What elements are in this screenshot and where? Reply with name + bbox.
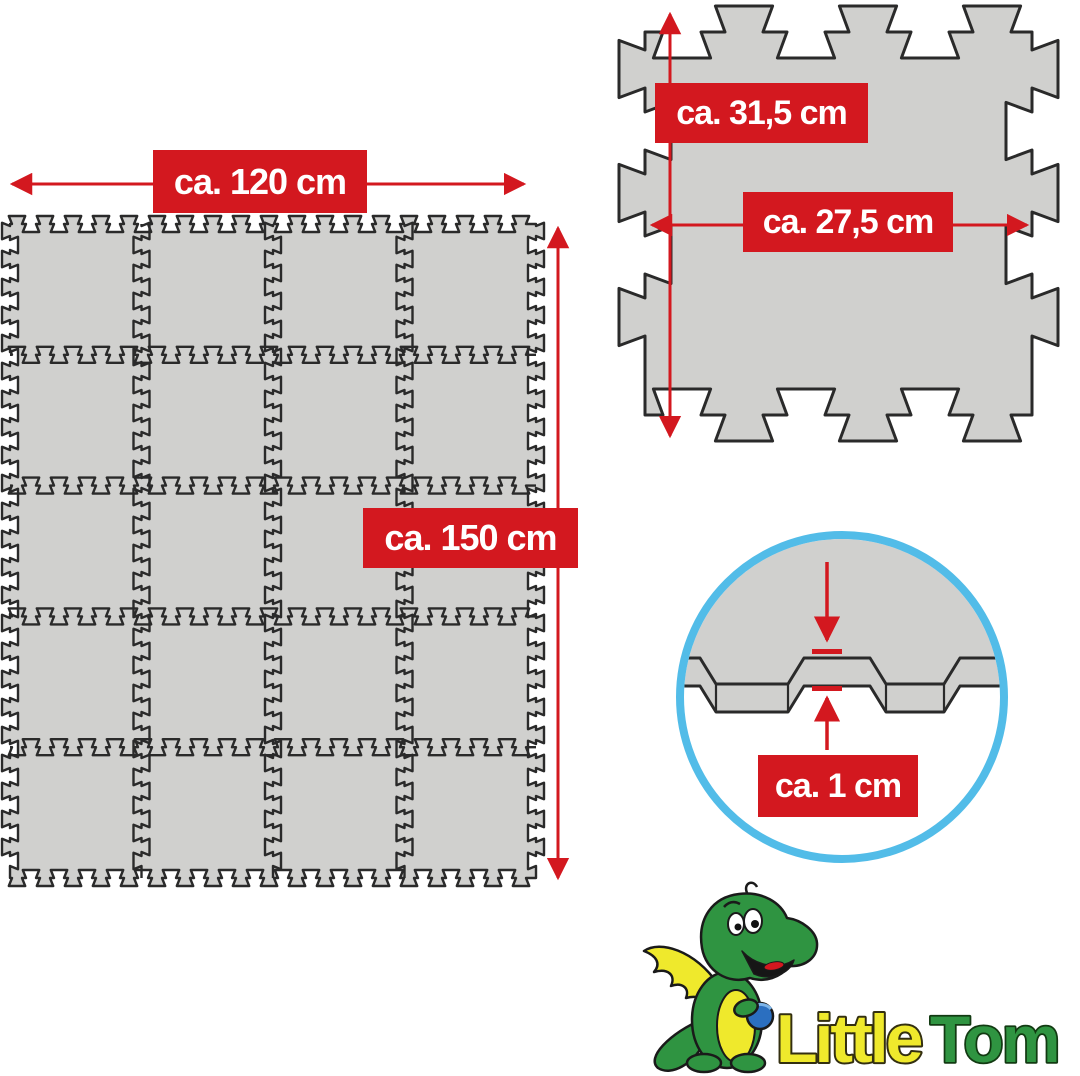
mat-width-label: ca. 120 cm bbox=[153, 150, 367, 213]
mat-height-label: ca. 150 cm bbox=[363, 508, 578, 568]
tile-outer-height-label: ca. 31,5 cm bbox=[655, 83, 868, 143]
mat-cross-section bbox=[655, 535, 1030, 712]
littletom-logo: LittleTom bbox=[644, 883, 1058, 1076]
logo-tom-text: Tom bbox=[930, 1002, 1058, 1076]
tile-inner-width-label: ca. 27,5 cm bbox=[743, 192, 953, 252]
logo-little-text: Little bbox=[776, 1001, 922, 1076]
product-dimension-diagram: { "product": { "description": "Interlock… bbox=[0, 0, 1080, 1076]
thickness-label: ca. 1 cm bbox=[758, 755, 918, 817]
